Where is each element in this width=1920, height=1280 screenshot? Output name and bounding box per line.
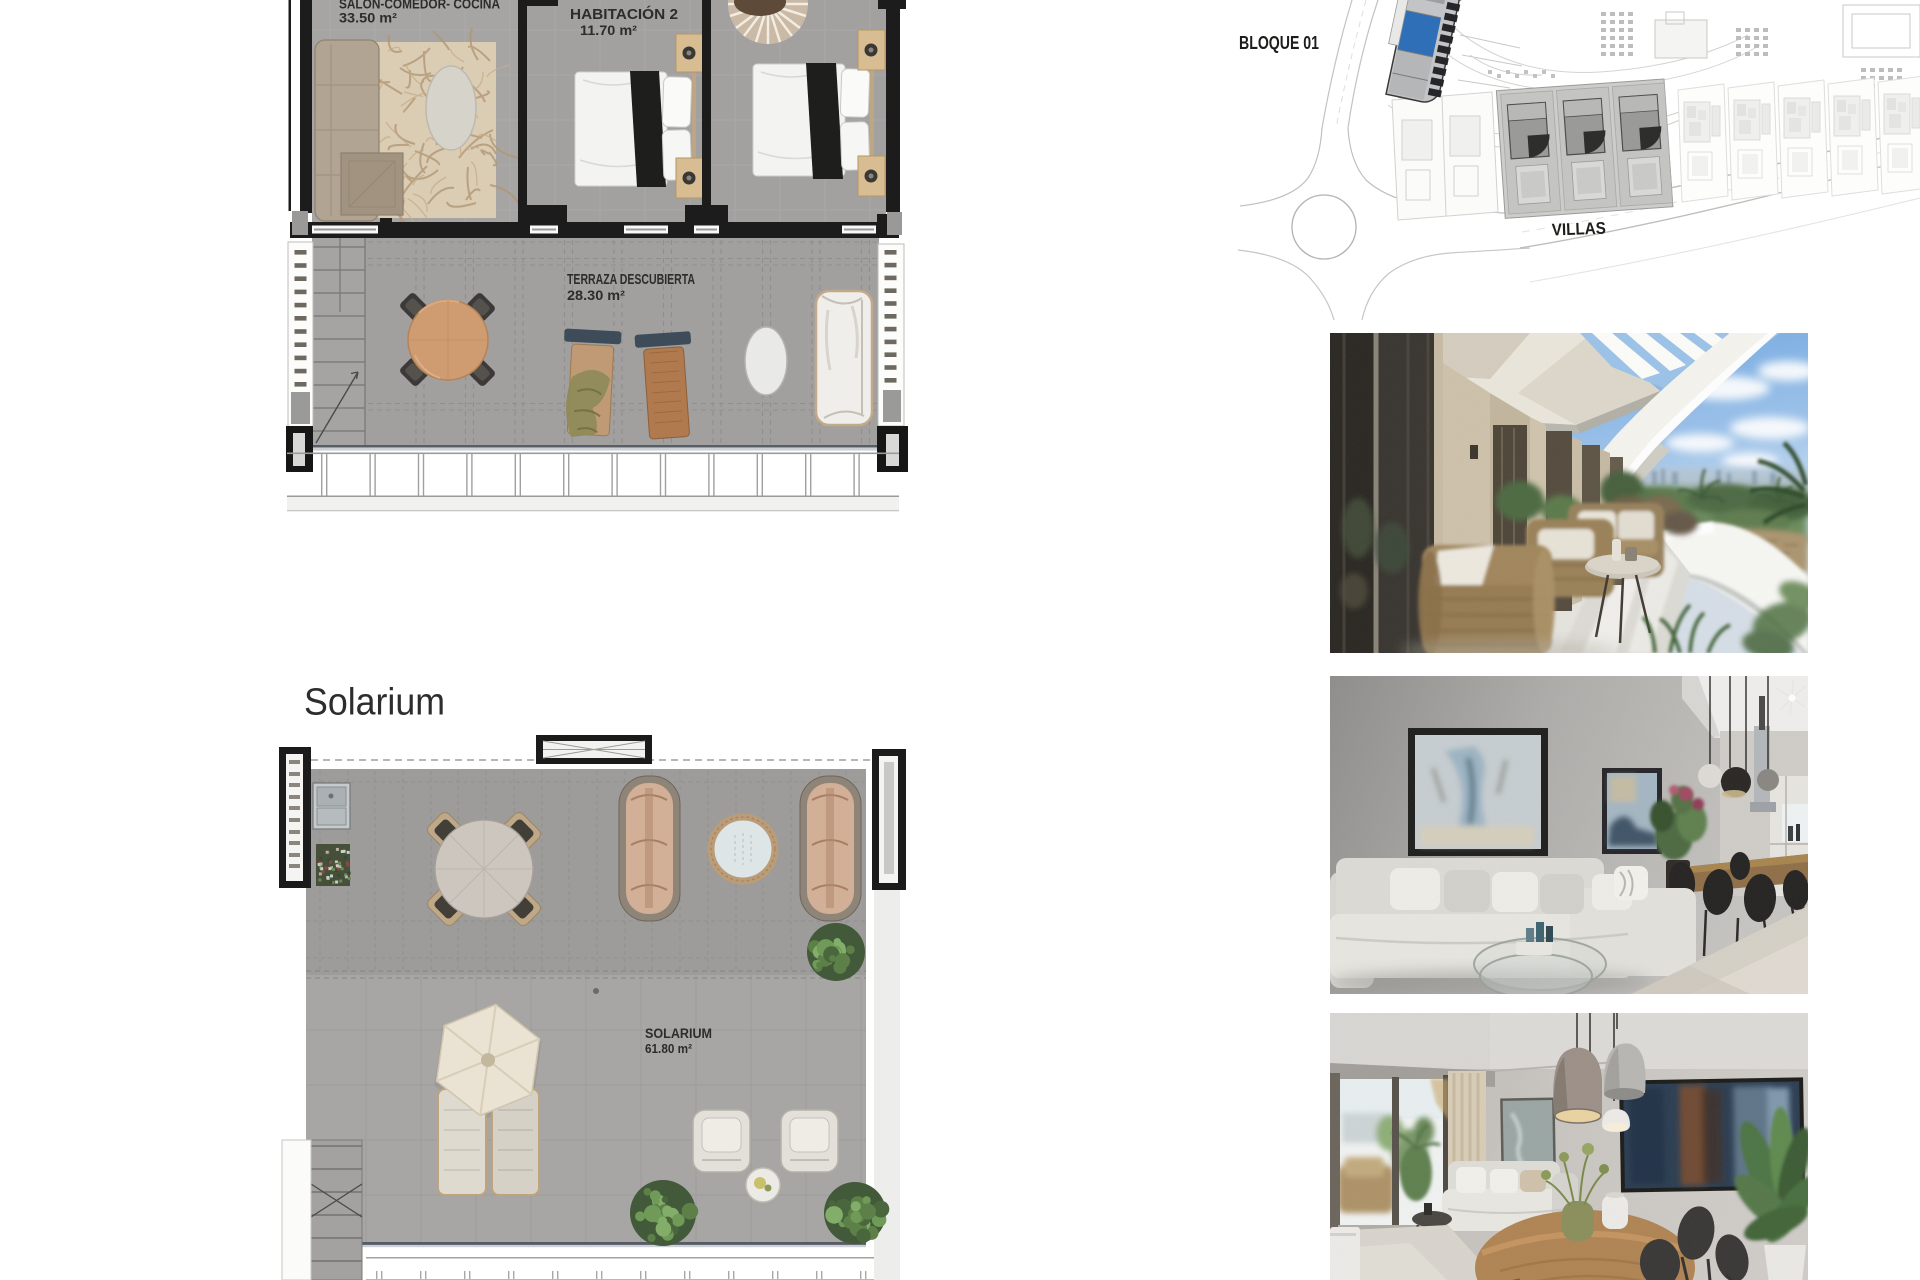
svg-text:11.70 m²: 11.70 m² xyxy=(580,23,638,38)
svg-text:VILLAS: VILLAS xyxy=(1551,219,1606,240)
svg-text:TERRAZA DESCUBIERTA: TERRAZA DESCUBIERTA xyxy=(567,271,695,288)
svg-text:33.50 m²: 33.50 m² xyxy=(339,11,398,26)
svg-text:HABITACIÓN 2: HABITACIÓN 2 xyxy=(570,5,678,23)
svg-text:Solarium: Solarium xyxy=(304,682,445,724)
svg-text:BLOQUE 01: BLOQUE 01 xyxy=(1239,33,1319,53)
svg-text:SOLARIUM: SOLARIUM xyxy=(645,1026,712,1041)
svg-text:61.80 m²: 61.80 m² xyxy=(645,1041,693,1056)
svg-text:28.30 m²: 28.30 m² xyxy=(567,287,625,303)
